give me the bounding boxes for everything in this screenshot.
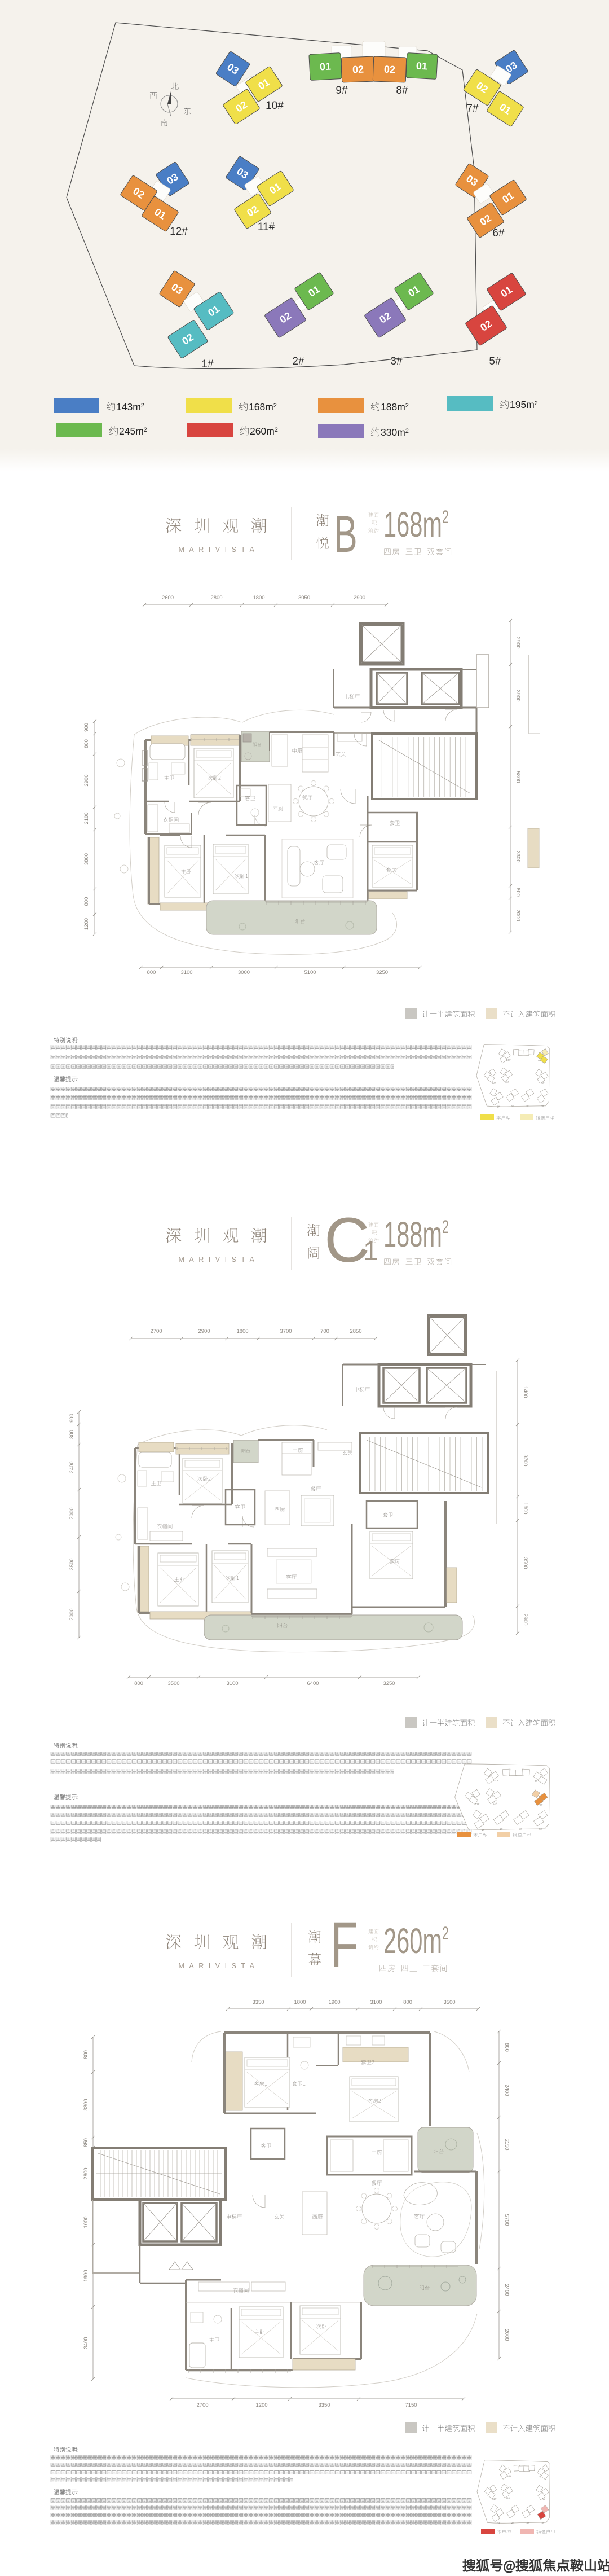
svg-text:1#: 1# (497, 1105, 500, 1108)
svg-text:2000: 2000 (69, 1608, 75, 1620)
svg-text:3#: 3# (390, 356, 403, 367)
svg-text:245m2: 245m2 (119, 425, 147, 437)
svg-text:800: 800 (147, 969, 156, 976)
svg-text:2#: 2# (292, 356, 304, 367)
svg-text:12#: 12# (492, 1081, 496, 1084)
svg-text:01: 01 (416, 60, 427, 72)
svg-text:195m2: 195m2 (510, 399, 538, 410)
svg-text:2000: 2000 (69, 1507, 75, 1519)
svg-text:8#: 8# (396, 85, 408, 96)
svg-text:7#: 7# (537, 1059, 541, 1062)
svg-text:1200: 1200 (83, 918, 90, 930)
svg-text:3300: 3300 (515, 850, 521, 862)
svg-text:260m2: 260m2 (383, 1922, 449, 1961)
svg-text:5#: 5# (539, 1828, 542, 1831)
svg-text:12#: 12# (492, 2498, 497, 2500)
svg-text:02: 02 (352, 64, 364, 76)
svg-text:2900: 2900 (354, 595, 365, 601)
svg-text:2800: 2800 (210, 595, 222, 601)
svg-text:6#: 6# (542, 2498, 545, 2501)
svg-text:2850: 2850 (350, 1328, 361, 1335)
svg-text:11#: 11# (505, 1081, 510, 1083)
svg-text:850: 850 (83, 2138, 89, 2147)
svg-text:9#: 9# (336, 85, 348, 96)
svg-text:6#: 6# (540, 1803, 543, 1806)
svg-text:1800: 1800 (253, 595, 264, 601)
svg-text:800: 800 (69, 1430, 75, 1439)
svg-text:2400: 2400 (504, 2284, 510, 2296)
svg-text:3#: 3# (526, 1105, 529, 1108)
svg-text:900: 900 (83, 723, 90, 732)
svg-text:3500: 3500 (443, 1999, 455, 2005)
svg-text:3350: 3350 (252, 1999, 264, 2005)
svg-text:12#: 12# (475, 1803, 480, 1806)
svg-text:2700: 2700 (150, 1328, 162, 1335)
svg-text:5100: 5100 (304, 969, 316, 976)
svg-text:02: 02 (384, 64, 396, 76)
svg-text:3500: 3500 (69, 1558, 75, 1570)
svg-text:1800: 1800 (236, 1328, 248, 1335)
svg-text:MARIVISTA: MARIVISTA (179, 1256, 259, 1263)
svg-text:800: 800 (83, 2050, 89, 2059)
svg-text:10#: 10# (495, 1779, 499, 1782)
svg-text:2900: 2900 (198, 1328, 210, 1335)
svg-text:2100: 2100 (83, 812, 90, 824)
svg-text:6#: 6# (492, 227, 505, 239)
svg-text:2900: 2900 (522, 1613, 528, 1625)
svg-text:330m2: 330m2 (381, 427, 409, 438)
svg-text:3400: 3400 (83, 2337, 89, 2349)
svg-text:2000: 2000 (504, 2329, 510, 2341)
svg-text:3350: 3350 (318, 2402, 330, 2408)
svg-text:1000: 1000 (83, 2216, 89, 2228)
svg-text:3100: 3100 (370, 1999, 382, 2005)
svg-text:10#: 10# (506, 1059, 511, 1061)
svg-text:11#: 11# (506, 2497, 510, 2500)
svg-text:2000: 2000 (515, 909, 521, 921)
svg-text:2#: 2# (511, 2521, 515, 2524)
svg-text:1800: 1800 (294, 1999, 306, 2005)
svg-text:3500: 3500 (522, 1557, 528, 1569)
svg-text:900: 900 (69, 1414, 75, 1423)
svg-text:188m2: 188m2 (383, 1215, 449, 1255)
svg-text:2800: 2800 (83, 2167, 89, 2179)
svg-text:B: B (334, 505, 358, 563)
svg-text:MARIVISTA: MARIVISTA (179, 546, 259, 554)
svg-text:1900: 1900 (83, 2270, 89, 2281)
svg-text:260m2: 260m2 (250, 425, 278, 437)
svg-text:800: 800 (134, 1680, 143, 1687)
svg-text:3100: 3100 (226, 1680, 238, 1687)
svg-text:12#: 12# (170, 226, 188, 238)
svg-text:11#: 11# (493, 1802, 497, 1805)
svg-text:3700: 3700 (280, 1328, 292, 1335)
svg-text:3100: 3100 (180, 969, 192, 976)
svg-text:2#: 2# (500, 1828, 503, 1831)
svg-text:1: 1 (363, 1236, 378, 1266)
svg-text:7#: 7# (538, 2475, 541, 2478)
svg-text:800: 800 (83, 897, 90, 906)
svg-text:F: F (330, 1909, 358, 1982)
svg-text:800: 800 (83, 739, 90, 748)
svg-text:11#: 11# (258, 221, 275, 233)
svg-text:3000: 3000 (238, 969, 250, 976)
svg-text:10#: 10# (507, 2474, 511, 2477)
svg-text:6400: 6400 (307, 1680, 319, 1687)
svg-text:168m2: 168m2 (249, 401, 277, 412)
svg-text:1#: 1# (482, 1828, 485, 1831)
svg-text:5150: 5150 (504, 2138, 510, 2150)
svg-text:1900: 1900 (328, 1999, 340, 2005)
svg-text:2600: 2600 (162, 595, 174, 601)
svg-text:2400: 2400 (504, 2084, 510, 2096)
svg-text:2#: 2# (511, 1105, 514, 1108)
svg-text:3300: 3300 (83, 2099, 89, 2110)
svg-text:168m2: 168m2 (383, 506, 449, 545)
svg-text:6#: 6# (541, 1082, 545, 1085)
svg-text:5#: 5# (541, 1105, 544, 1108)
svg-text:700: 700 (320, 1328, 329, 1335)
svg-text:3700: 3700 (522, 1454, 528, 1466)
svg-text:188m2: 188m2 (381, 401, 409, 412)
svg-text:800: 800 (515, 888, 521, 897)
svg-text:MARIVISTA: MARIVISTA (179, 1962, 259, 1970)
svg-text:1200: 1200 (255, 2402, 267, 2408)
svg-text:143m2: 143m2 (116, 401, 144, 412)
svg-text:01: 01 (319, 60, 331, 72)
svg-text:2900: 2900 (83, 774, 90, 786)
svg-text:2400: 2400 (69, 1461, 75, 1473)
svg-text:800: 800 (504, 2043, 510, 2052)
svg-text:10#: 10# (266, 100, 284, 112)
svg-text:3250: 3250 (376, 969, 388, 976)
svg-text:3#: 3# (527, 2521, 530, 2524)
svg-text:2700: 2700 (196, 2402, 208, 2408)
svg-text:5#: 5# (489, 356, 501, 367)
svg-text:3500: 3500 (167, 1680, 179, 1687)
svg-text:1#: 1# (201, 358, 214, 370)
svg-text:3250: 3250 (383, 1680, 395, 1687)
svg-text:7150: 7150 (405, 2402, 417, 2408)
svg-text:1400: 1400 (522, 1386, 528, 1398)
svg-text:5700: 5700 (504, 2214, 510, 2226)
svg-text:3900: 3900 (515, 690, 521, 701)
svg-text:1800: 1800 (522, 1502, 528, 1514)
svg-text:5#: 5# (541, 2521, 545, 2524)
svg-text:3050: 3050 (298, 595, 310, 601)
svg-text:3#: 3# (519, 1828, 523, 1831)
svg-text:800: 800 (403, 1999, 412, 2005)
svg-text:5800: 5800 (515, 771, 521, 783)
svg-text:1#: 1# (497, 2522, 501, 2525)
svg-text:7#: 7# (466, 103, 479, 115)
svg-text:2900: 2900 (515, 637, 521, 648)
svg-text:3800: 3800 (83, 853, 90, 865)
svg-text:7#: 7# (535, 1780, 538, 1783)
